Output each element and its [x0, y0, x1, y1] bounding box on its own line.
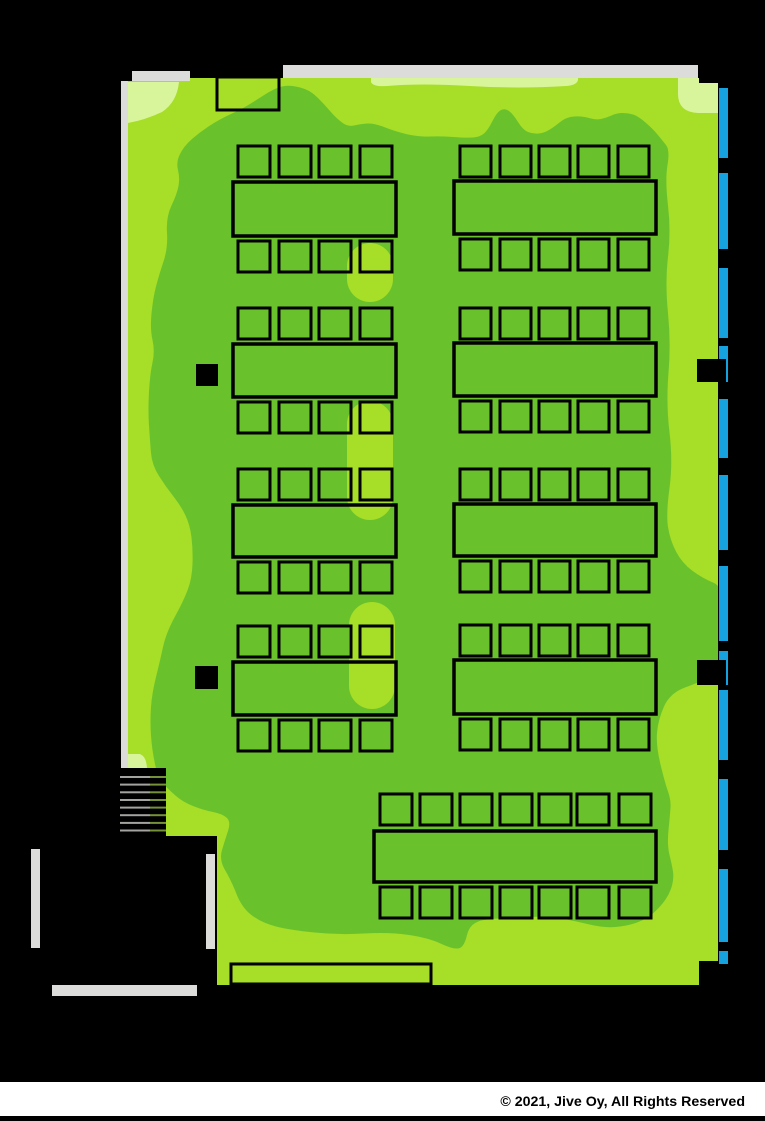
svg-text:© 2021, Jive Oy, All Rights Re: © 2021, Jive Oy, All Rights Reserved	[500, 1094, 745, 1110]
